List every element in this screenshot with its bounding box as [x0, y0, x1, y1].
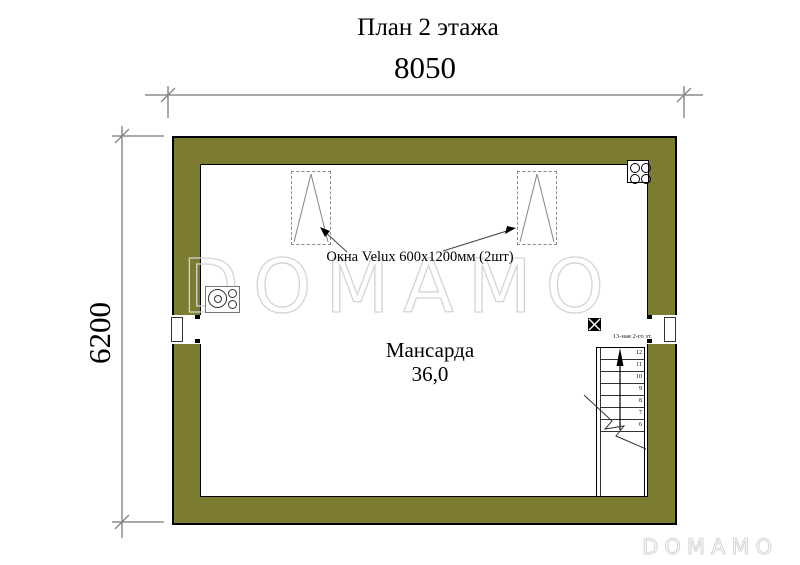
window-swing-lines: [292, 172, 330, 244]
burner-inner: [214, 295, 222, 303]
room-area: 36,0: [330, 362, 530, 386]
flue-circle: [641, 163, 651, 173]
small-burner: [228, 300, 237, 309]
window-swing-lines: [518, 172, 556, 244]
stair-step: 12: [601, 348, 644, 360]
velux-windows-label: Окна Velux 600х1200мм (2шт): [315, 249, 525, 266]
small-burner: [228, 289, 237, 298]
chimney-vent-icon: [627, 160, 649, 183]
dimension-width-value: 8050: [120, 50, 730, 86]
stair-step: 9: [601, 384, 644, 396]
stair-step: 11: [601, 360, 644, 372]
room-name: Мансарда: [330, 338, 530, 362]
stair-step: 6: [601, 420, 644, 432]
dimension-height-value: 6200: [82, 288, 118, 378]
stair-step: 7: [601, 408, 644, 420]
stairs-note: 13-ная 2-го эт.: [594, 333, 652, 340]
stair-steps: 12 11 10 9 8 7 6: [601, 348, 644, 432]
stair-step: 8: [601, 396, 644, 408]
velux-window-2: [517, 171, 557, 245]
room-label: Мансарда 36,0: [330, 338, 530, 386]
boiler-stove-icon: [205, 286, 240, 313]
page-title: План 2 этажа: [58, 14, 798, 42]
window-frame-icon: [171, 317, 183, 342]
wall-cap: [195, 315, 200, 319]
floor-plan-canvas: План 2 этажа 8050 6200 DOMAMO: [0, 0, 800, 565]
wall-cap: [195, 339, 200, 343]
window-frame-icon: [664, 317, 676, 342]
staircase: 12 11 10 9 8 7 6: [596, 347, 645, 497]
flue-circle: [641, 174, 651, 184]
stair-step: 10: [601, 372, 644, 384]
velux-window-1: [291, 171, 331, 245]
watermark-corner-text: DOMAMO: [642, 535, 778, 559]
wall-window-left: [169, 315, 202, 344]
shaft-marker-icon: [588, 318, 601, 331]
flue-circle: [630, 163, 640, 173]
wall-cap: [647, 315, 652, 319]
top-dimension-line: [145, 86, 703, 118]
room-interior: [200, 164, 648, 497]
flue-circle: [630, 174, 640, 184]
left-dimension-line: [112, 126, 164, 538]
